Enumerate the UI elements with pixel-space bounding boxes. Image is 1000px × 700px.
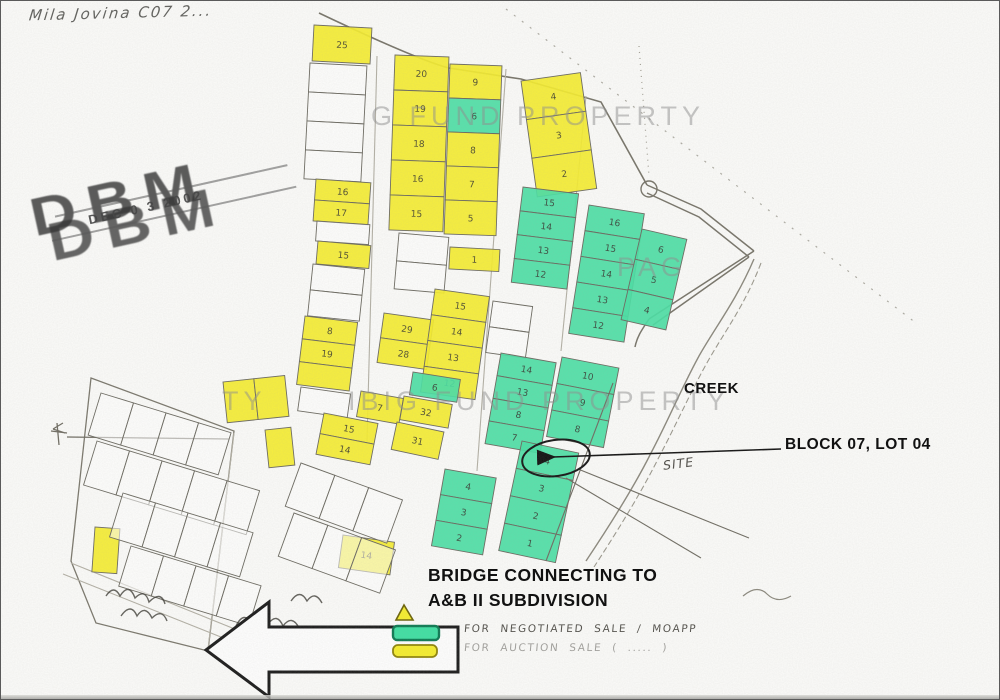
block-lot-callout-label: BLOCK 07, LOT 04 — [785, 436, 931, 454]
watermark-fragment: G FUND PROPERTY — [371, 101, 705, 132]
watermark-fragment: TY — [222, 386, 267, 417]
scan-bottom-edge — [1, 695, 1000, 699]
watermark-fragment: PAG — [617, 252, 687, 283]
bridge-caption-line2: A&B II SUBDIVISION — [428, 590, 608, 611]
watermark-fragment: IBIG FUND PROPERTY — [348, 386, 730, 417]
legend-label-auction: FOR AUCTION SALE ( ..... ) — [463, 642, 668, 654]
bridge-caption-line1: BRIDGE CONNECTING TO — [428, 565, 657, 586]
legend-label-negotiated: FOR NEGOTIATED SALE / MOAPP — [463, 623, 697, 635]
creek-label: CREEK — [684, 380, 739, 397]
scanned-subdivision-map: 2516171581915142019181615968754321292815… — [0, 0, 1000, 700]
